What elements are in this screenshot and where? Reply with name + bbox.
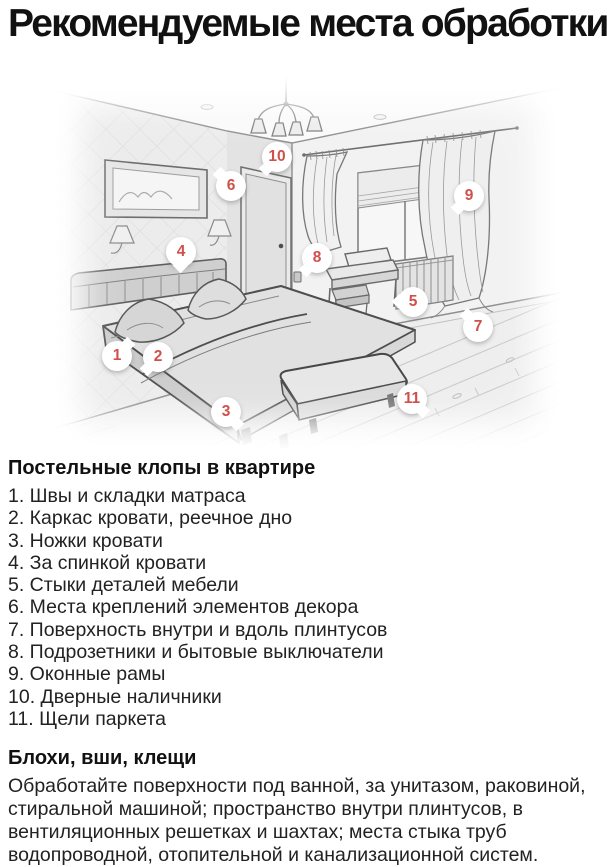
bedroom-illustration: 1234567891011 — [55, 78, 560, 448]
scene-markers: 1234567891011 — [55, 78, 560, 448]
fleas-heading: Блохи, вши, клещи — [8, 746, 599, 770]
treatment-marker-6: 6 — [216, 171, 246, 201]
list-item: 9. Оконные рамы — [8, 663, 599, 685]
treatment-marker-10: 10 — [262, 142, 292, 172]
list-item: 10. Дверные наличники — [8, 686, 599, 708]
list-item: 8. Подрозетники и бытовые выключатели — [8, 641, 599, 663]
fleas-paragraph: Обработайте поверхности под ванной, за у… — [8, 775, 599, 867]
treatment-marker-5: 5 — [398, 287, 428, 317]
treatment-marker-4: 4 — [166, 237, 196, 267]
page-title: Рекомендуемые места обработки — [8, 2, 607, 46]
treatment-marker-2: 2 — [143, 342, 173, 372]
treatment-marker-3: 3 — [211, 397, 241, 427]
treatment-marker-11: 11 — [397, 384, 427, 414]
list-item: 3. Ножки кровати — [8, 530, 599, 552]
treatment-marker-9: 9 — [454, 181, 484, 211]
treatment-marker-7: 7 — [463, 312, 493, 342]
bedbugs-heading: Постельные клопы в квартире — [8, 456, 599, 480]
list-item: 6. Места креплений элементов декора — [8, 596, 599, 618]
treatment-marker-1: 1 — [102, 341, 132, 371]
list-item: 1. Швы и складки матраса — [8, 485, 599, 507]
list-item: 4. За спинкой кровати — [8, 552, 599, 574]
list-item: 11. Щели паркета — [8, 708, 599, 730]
bedbugs-list: 1. Швы и складки матраса 2. Каркас крова… — [8, 485, 599, 730]
list-item: 5. Стыки деталей мебели — [8, 574, 599, 596]
text-content: Постельные клопы в квартире 1. Швы и скл… — [8, 456, 599, 867]
treatment-marker-8: 8 — [302, 243, 332, 273]
list-item: 7. Поверхность внутри и вдоль плинтусов — [8, 619, 599, 641]
list-item: 2. Каркас кровати, реечное дно — [8, 507, 599, 529]
